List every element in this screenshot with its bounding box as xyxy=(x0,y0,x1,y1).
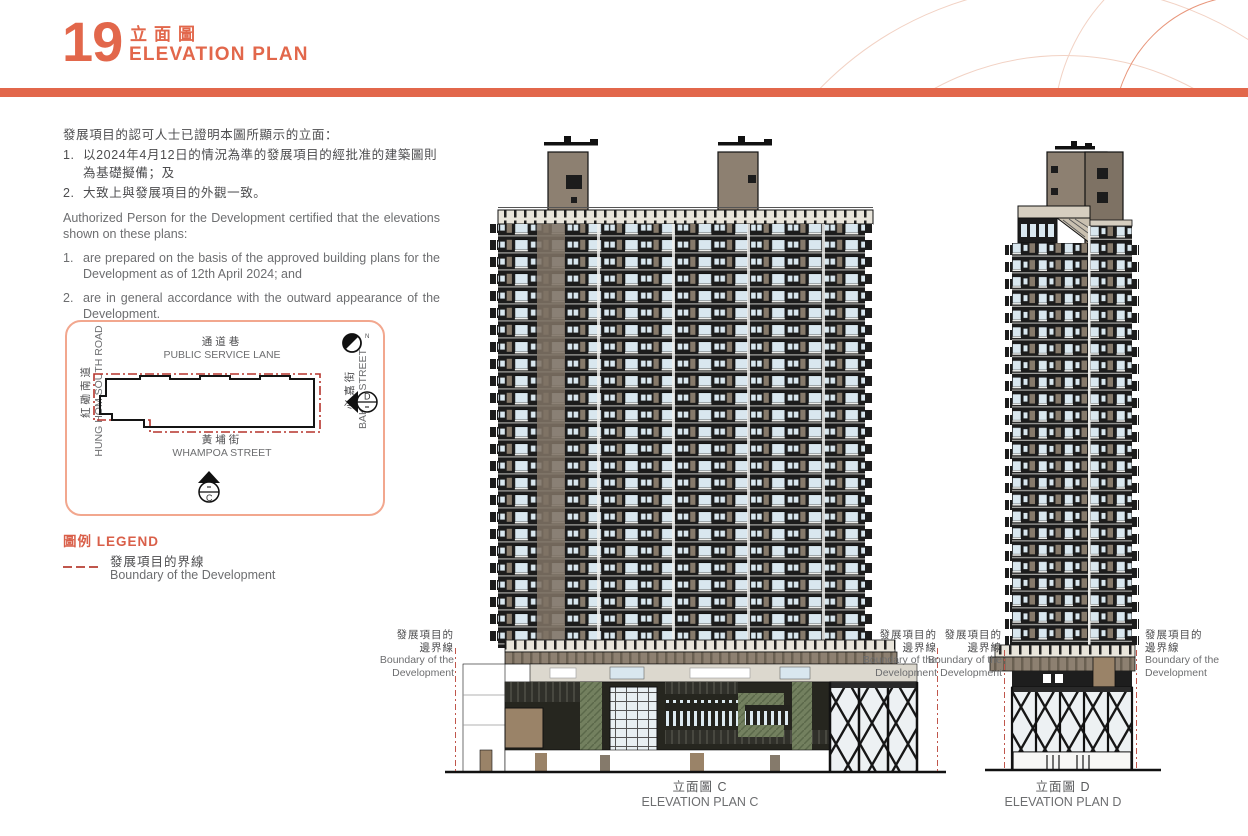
site-footprint-drawing xyxy=(92,370,342,440)
boundary-line-d-right xyxy=(1136,650,1137,770)
boundary-note-d-right: 發展項目的 邊界線 Boundary of the Development xyxy=(1145,629,1221,679)
cert-zh-item: 2. 大致上與發展項目的外觀一致。 xyxy=(63,184,440,202)
svg-text:C: C xyxy=(206,493,213,503)
item-text: are prepared on the basis of the approve… xyxy=(83,250,440,282)
cert-en-item: 2. are in general accordance with the ou… xyxy=(63,290,440,322)
legend-title: 圖例 LEGEND xyxy=(63,530,159,550)
caption-elevation-d: 立面圖 D ELEVATION PLAN D xyxy=(923,780,1203,810)
page-title-zh: 立面圖 xyxy=(130,20,202,45)
boundary-line-c-left xyxy=(455,648,456,772)
cert-en-item: 1. are prepared on the basis of the appr… xyxy=(63,250,440,282)
boundary-note-c-left: 發展項目的 邊界線 Boundary of the Development xyxy=(378,629,454,679)
elevation-c-drawing xyxy=(440,135,946,775)
item-number: 2. xyxy=(63,184,83,202)
decorative-arcs xyxy=(818,0,1248,88)
item-text: 以2024年4月12日的情況為準的發展項目的經批准的建築圖則為基礎擬備；及 xyxy=(83,146,440,182)
item-number: 1. xyxy=(63,146,83,182)
item-text: are in general accordance with the outwa… xyxy=(83,290,440,322)
item-number: 1. xyxy=(63,250,83,282)
svg-text:D: D xyxy=(364,392,371,402)
elevation-d-drawing xyxy=(985,140,1161,775)
legend-boundary-line-sample xyxy=(63,566,99,568)
boundary-line-d-left xyxy=(1004,650,1005,770)
cert-zh-intro: 發展項目的認可人士已證明本圖所顯示的立面： xyxy=(63,126,440,144)
brochure-page: 19 立面圖 ELEVATION PLAN 發展項目的認可人士已證明本圖所顯示的… xyxy=(0,0,1248,836)
page-number: 19 xyxy=(62,12,122,72)
page-title-en: ELEVATION PLAN xyxy=(129,44,309,66)
site-location-plan: N 通道巷 PUBLIC SERVICE LANE 紅磡南道 HUNG HOM … xyxy=(65,320,385,516)
legend-boundary-en: Boundary of the Development xyxy=(110,568,275,582)
elevation-c-view-marker: C xyxy=(193,470,225,506)
caption-elevation-c: 立面圖 C ELEVATION PLAN C xyxy=(560,780,840,810)
item-text: 大致上與發展項目的外觀一致。 xyxy=(83,184,440,202)
header-divider-bar xyxy=(0,88,1248,97)
road-label-public-service-lane: 通道巷 PUBLIC SERVICE LANE xyxy=(122,336,322,362)
elevation-d-view-marker: D xyxy=(345,386,381,418)
cert-zh-item: 1. 以2024年4月12日的情況為準的發展項目的經批准的建築圖則為基礎擬備；及 xyxy=(63,146,440,182)
boundary-note-d-left: 發展項目的 邊界線 Boundary of the Development xyxy=(926,629,1002,679)
certification-block: 發展項目的認可人士已證明本圖所顯示的立面： 1. 以2024年4月12日的情況為… xyxy=(63,126,440,322)
cert-en-intro: Authorized Person for the Development ce… xyxy=(63,210,440,242)
